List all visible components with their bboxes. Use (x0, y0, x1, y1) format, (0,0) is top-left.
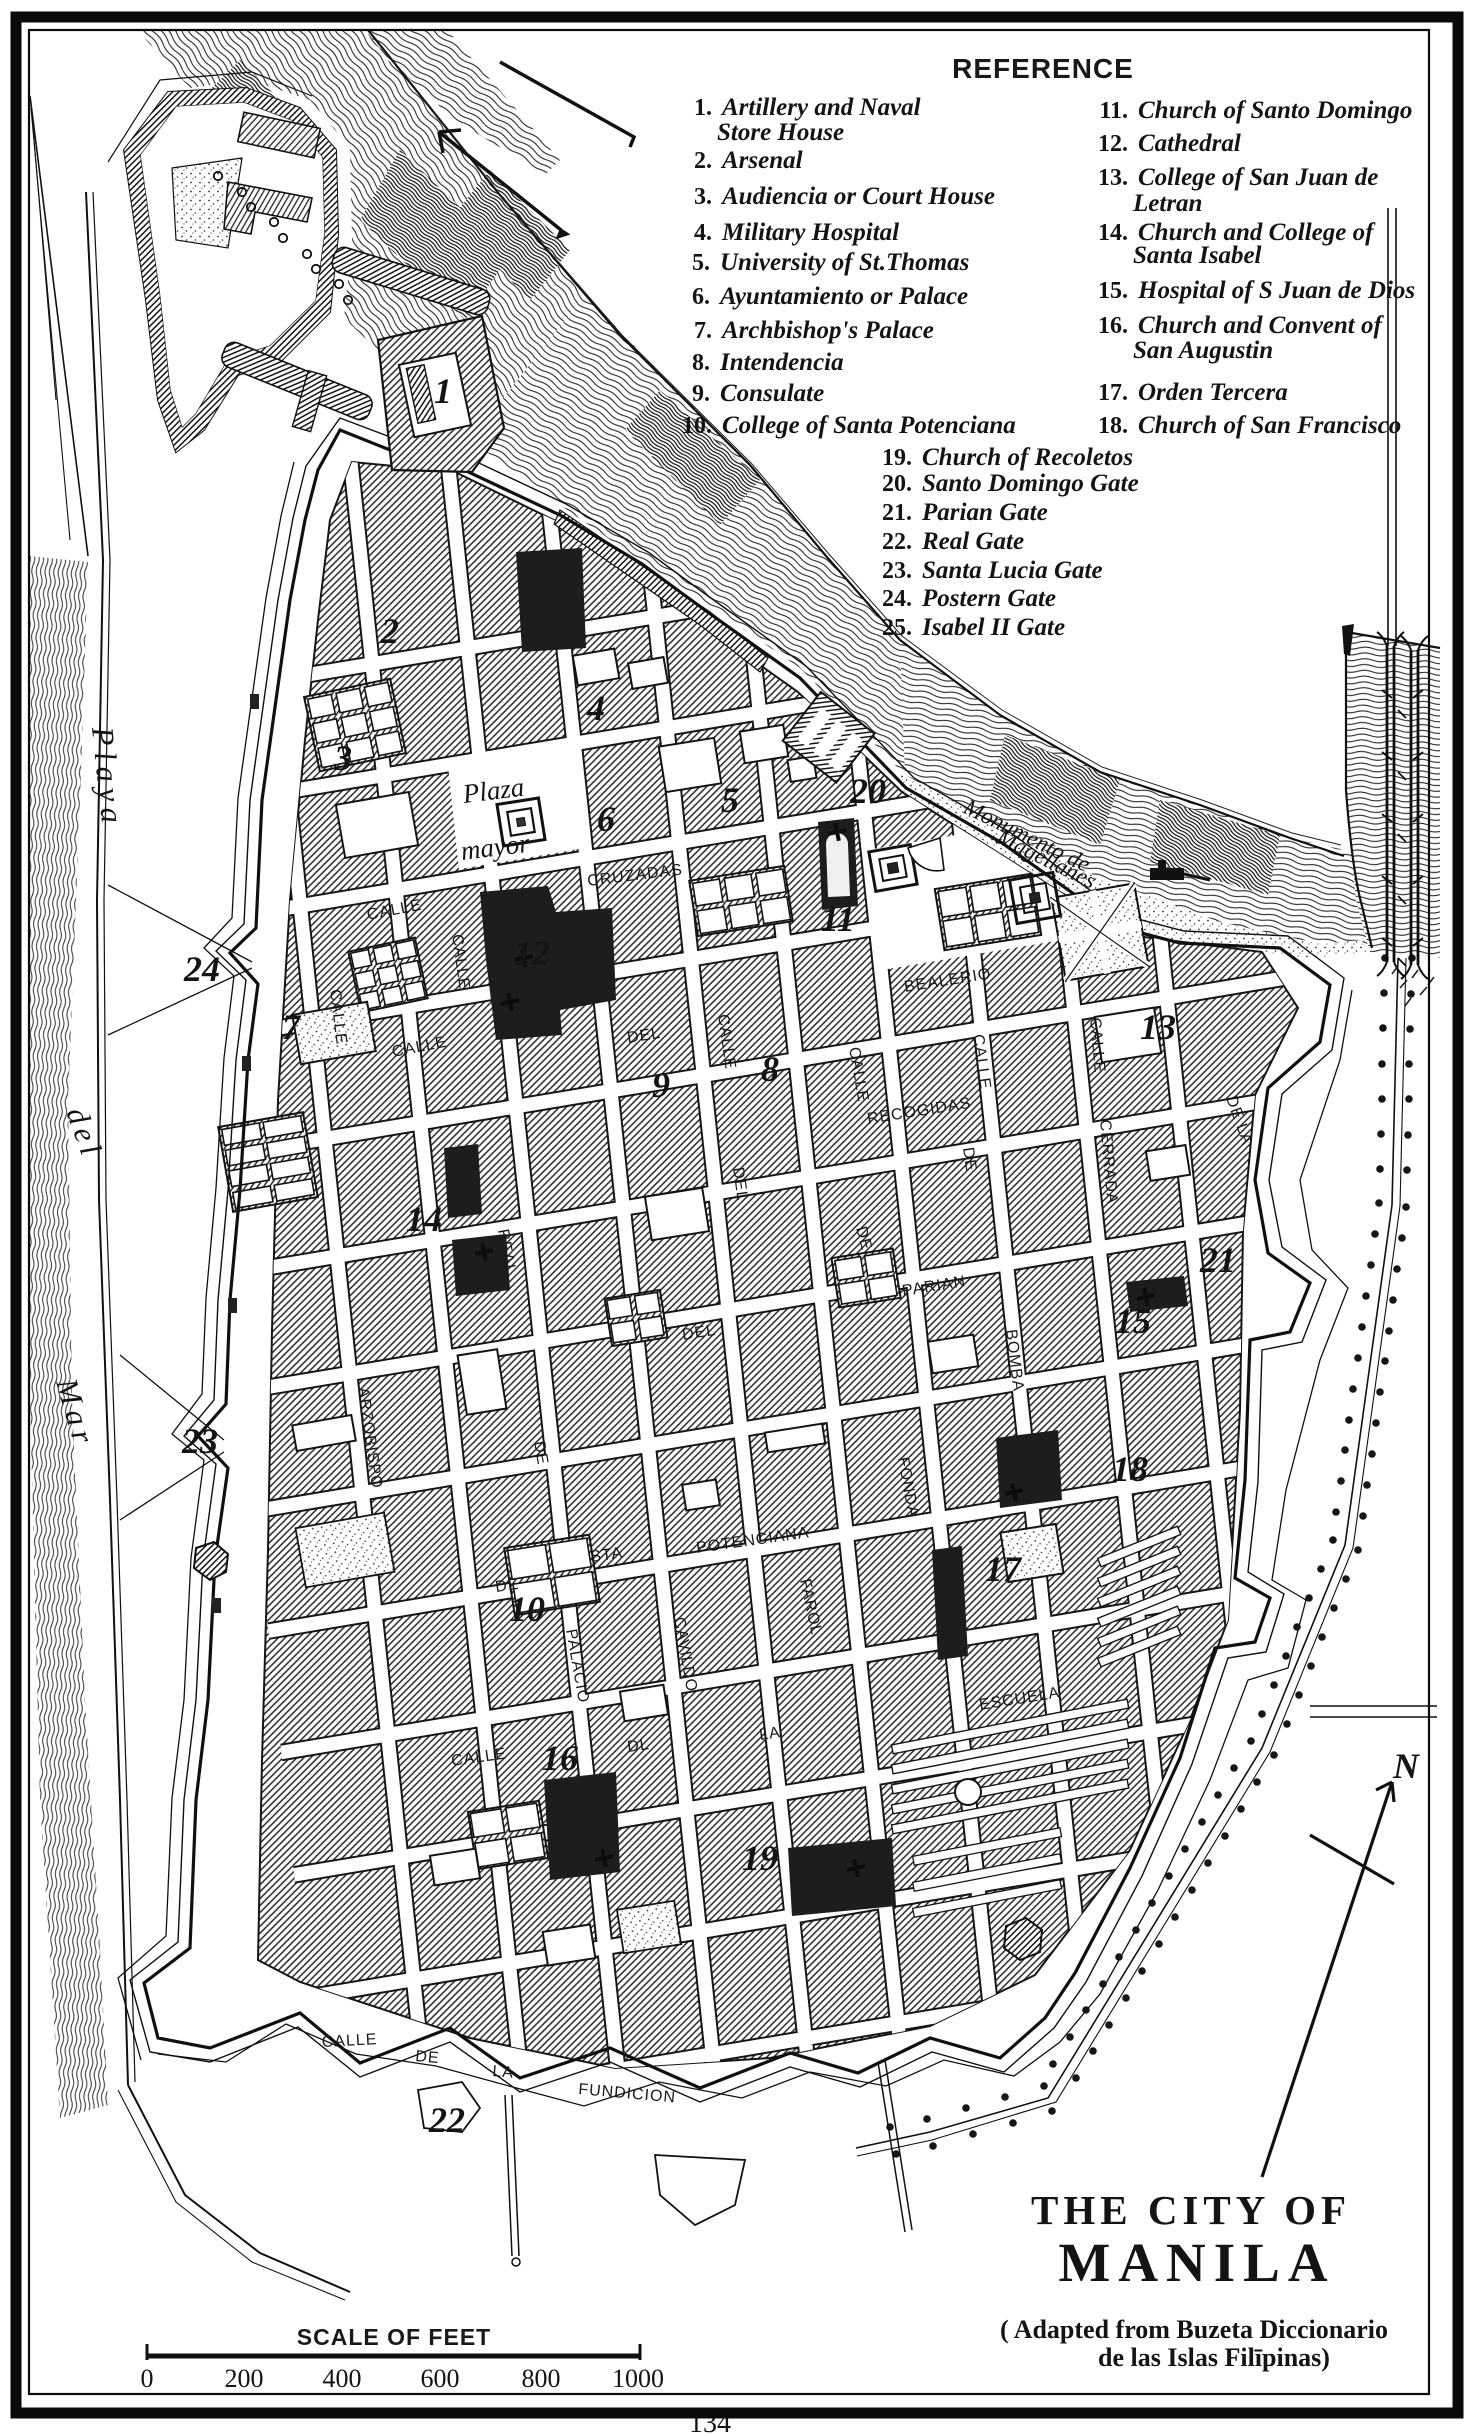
svg-text:Postern Gate: Postern Gate (921, 585, 1056, 612)
svg-text:1000: 1000 (612, 2364, 664, 2393)
svg-text:16.: 16. (1098, 313, 1128, 339)
svg-text:10: 10 (509, 1589, 545, 1629)
svg-text:13.: 13. (1098, 165, 1128, 191)
svg-text:Parian Gate: Parian Gate (921, 499, 1048, 526)
svg-text:Church of San Francisco: Church of San Francisco (1138, 412, 1401, 439)
svg-text:3: 3 (333, 738, 352, 778)
svg-text:4.: 4. (694, 220, 712, 246)
svg-text:Artillery and Naval: Artillery and Naval (720, 94, 921, 121)
svg-text:Letran: Letran (1132, 190, 1202, 217)
svg-text:1.: 1. (694, 95, 712, 121)
svg-text:7.: 7. (694, 318, 712, 344)
svg-text:Church and Convent of: Church and Convent of (1138, 312, 1384, 339)
svg-text:14: 14 (406, 1199, 442, 1239)
svg-text:19.: 19. (882, 445, 912, 471)
svg-text:Intendencia: Intendencia (719, 349, 844, 376)
svg-text:400: 400 (323, 2364, 362, 2393)
svg-text:SCALE OF FEET: SCALE OF FEET (297, 2324, 491, 2350)
svg-text:THE CITY OF: THE CITY OF (1031, 2187, 1351, 2233)
svg-text:10.: 10. (682, 413, 712, 439)
svg-text:23: 23 (181, 1421, 218, 1461)
svg-text:9: 9 (652, 1065, 670, 1105)
svg-text:CALLE: CALLE (321, 2031, 378, 2051)
svg-text:Consulate: Consulate (720, 380, 824, 407)
svg-text:San Augustin: San Augustin (1133, 337, 1273, 364)
svg-text:N: N (1392, 1746, 1421, 1786)
svg-text:Real Gate: Real Gate (921, 528, 1024, 555)
svg-text:1: 1 (434, 371, 452, 411)
svg-text:21.: 21. (882, 500, 912, 526)
svg-text:Store House: Store House (717, 119, 844, 146)
svg-text:2: 2 (380, 611, 399, 651)
svg-text:LA: LA (758, 1724, 782, 1744)
svg-text:17: 17 (985, 1549, 1023, 1589)
svg-text:200: 200 (225, 2364, 264, 2393)
svg-text:0: 0 (141, 2364, 154, 2393)
svg-text:22: 22 (428, 2100, 465, 2140)
svg-text:17.: 17. (1098, 380, 1128, 406)
svg-text:Isabel II Gate: Isabel II Gate (921, 614, 1065, 641)
svg-text:6: 6 (597, 799, 615, 839)
svg-text:2.: 2. (694, 148, 712, 174)
svg-text:DE: DE (415, 2048, 441, 2067)
svg-text:7: 7 (282, 1007, 302, 1047)
svg-text:LA: LA (492, 2063, 515, 2082)
svg-text:11.: 11. (1099, 98, 1128, 124)
svg-text:16: 16 (542, 1738, 578, 1778)
svg-text:Audiencia or Court House: Audiencia or Court House (720, 183, 995, 210)
svg-text:College of Santa Potenciana: College of Santa Potenciana (722, 412, 1016, 439)
svg-text:13: 13 (1140, 1007, 1176, 1047)
svg-text:University of St.Thomas: University of St.Thomas (720, 249, 969, 276)
svg-text:Arsenal: Arsenal (720, 147, 803, 174)
svg-text:23.: 23. (882, 558, 912, 584)
svg-text:24: 24 (183, 949, 220, 989)
svg-text:8.: 8. (692, 350, 710, 376)
svg-text:18.: 18. (1098, 413, 1128, 439)
svg-text:20: 20 (849, 771, 886, 811)
svg-text:15: 15 (1115, 1301, 1151, 1341)
svg-text:4: 4 (586, 688, 605, 728)
svg-text:8: 8 (761, 1049, 779, 1089)
svg-text:DE: DE (494, 1576, 520, 1596)
svg-text:24.: 24. (882, 586, 912, 612)
svg-text:Military Hospital: Military Hospital (721, 219, 899, 246)
svg-text:600: 600 (421, 2364, 460, 2393)
svg-text:18: 18 (1112, 1449, 1148, 1489)
svg-text:5.: 5. (692, 250, 710, 276)
svg-text:Santo Domingo Gate: Santo Domingo Gate (922, 470, 1139, 497)
svg-text:21: 21 (1199, 1240, 1236, 1280)
svg-text:Archbishop's Palace: Archbishop's Palace (720, 317, 934, 344)
svg-text:Hospital of S Juan de Dios: Hospital of S Juan de Dios (1137, 277, 1415, 304)
svg-text:Cathedral: Cathedral (1138, 130, 1241, 157)
svg-text:15.: 15. (1098, 278, 1128, 304)
svg-text:3.: 3. (694, 184, 712, 210)
svg-text:9.: 9. (692, 381, 710, 407)
svg-text:Church of Santo Domingo: Church of Santo Domingo (1138, 97, 1412, 124)
svg-text:MANILA: MANILA (1058, 2232, 1335, 2293)
svg-text:6.: 6. (692, 284, 710, 310)
svg-text:DE: DE (959, 1146, 979, 1172)
svg-text:25.: 25. (882, 615, 912, 641)
svg-text:5: 5 (721, 780, 739, 820)
svg-text:14.: 14. (1098, 220, 1128, 246)
svg-text:Santa Isabel: Santa Isabel (1133, 242, 1262, 269)
svg-text:19: 19 (742, 1838, 778, 1878)
svg-text:11: 11 (821, 899, 855, 939)
svg-text:( Adapted from Buzeta Dicciona: ( Adapted from Buzeta Diccionario (1000, 2315, 1388, 2344)
svg-text:12: 12 (514, 933, 550, 973)
svg-text:Santa Lucia Gate: Santa Lucia Gate (922, 557, 1103, 584)
svg-text:Church of Recoletos: Church of Recoletos (922, 444, 1133, 471)
svg-text:12.: 12. (1098, 131, 1128, 157)
svg-text:DL: DL (626, 1736, 651, 1756)
svg-text:800: 800 (522, 2364, 561, 2393)
svg-text:Orden Tercera: Orden Tercera (1138, 379, 1288, 406)
svg-text:20.: 20. (882, 471, 912, 497)
svg-text:22.: 22. (882, 529, 912, 555)
svg-text:Ayuntamiento or Palace: Ayuntamiento or Palace (718, 283, 968, 310)
svg-text:REFERENCE: REFERENCE (952, 53, 1134, 84)
svg-text:de las Islas Filīpinas): de las Islas Filīpinas) (1098, 2343, 1330, 2372)
svg-text:College of San Juan de: College of San Juan de (1138, 164, 1378, 191)
